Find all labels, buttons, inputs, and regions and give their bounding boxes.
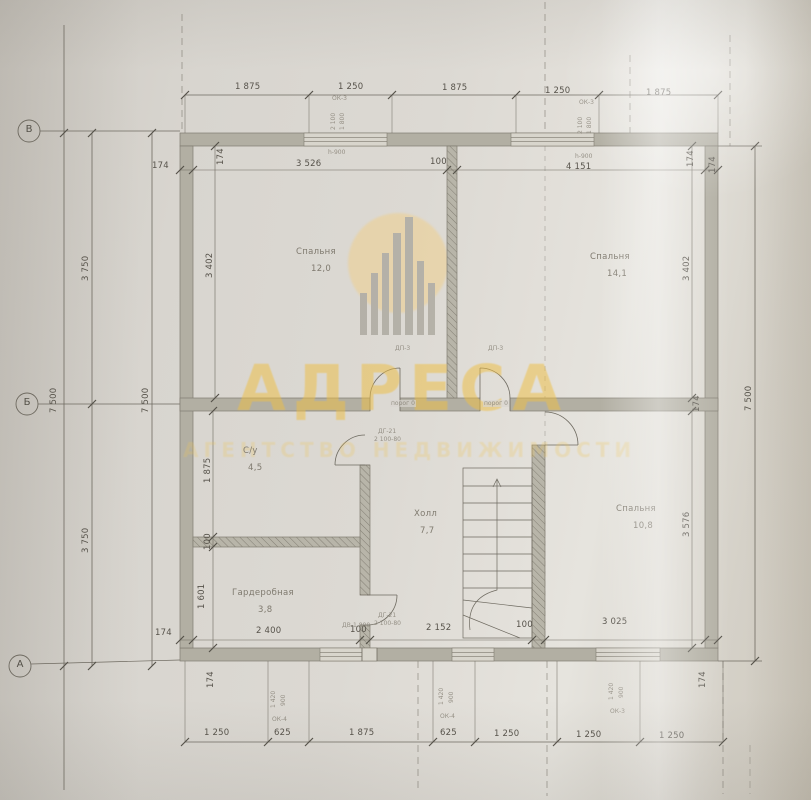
window-spec-top-1b: 1 800 [339, 113, 346, 130]
dim-wall-bl: 174 [155, 628, 172, 638]
dim-hall-width: 2 152 [426, 623, 451, 633]
dim-bot-2: 625 [274, 728, 291, 738]
window-spec-top-2a: 2 100 [577, 117, 584, 134]
window-tag-bot-3: ОК-3 [610, 708, 625, 715]
window-tag-bot-1: ОК-4 [272, 716, 287, 723]
door-tag-1: ДП-3 [395, 345, 410, 352]
dim-bot-7: 1 250 [659, 731, 684, 741]
room-wardrobe-name: Гардеробная [232, 588, 294, 598]
window-spec-top-1a: 2 100 [330, 113, 337, 130]
axis-label-a: А [13, 659, 27, 670]
dim-bot-5: 1 250 [494, 729, 519, 739]
room-hall-area: 7,7 [420, 526, 434, 536]
dim-partition-top: 100 [430, 157, 447, 167]
dim-right-total: 7 500 [744, 386, 754, 411]
dim-partition2-bot: 100 [516, 620, 533, 630]
dim-left-half-bottom: 3 750 [81, 528, 91, 553]
room-bedroom2-area: 14,1 [607, 269, 627, 279]
room-bedroom2-name: Спальня [590, 252, 630, 262]
window-spec-bot-2b: 900 [448, 692, 455, 703]
room-bedroom1-name: Спальня [296, 247, 336, 257]
room-bedroom3-area: 10,8 [633, 521, 653, 531]
staircase [463, 468, 532, 638]
room-wardrobe-area: 3,8 [258, 605, 272, 615]
door-spec-wardrobe-2: 2 100-80 [374, 620, 401, 627]
dim-room2-width: 4 151 [566, 162, 591, 172]
threshold-note-1: порог 0 [390, 400, 416, 407]
dim-bedroom3-width: 3 025 [602, 617, 627, 627]
dim-top-4: 1 250 [545, 86, 570, 96]
door-spec-bath-1: ДГ-21 [378, 428, 396, 435]
room-bathroom-name: С/у [243, 446, 258, 456]
window-tag-bot-2: ОК-4 [440, 713, 455, 720]
dim-top-3: 1 875 [442, 83, 467, 93]
window-spec-bot-1b: 900 [280, 695, 287, 706]
dim-wall-tr-v2: 174 [708, 156, 718, 173]
threshold-note-2: порог 0 [483, 400, 509, 407]
dim-wardrobe-width: 2 400 [256, 626, 281, 636]
dim-bot-4: 625 [440, 728, 457, 738]
sill-note-1: h-900 [328, 149, 345, 156]
room-bedroom3-name: Спальня [616, 504, 656, 514]
dim-wall-tl-v: 174 [216, 148, 226, 165]
dim-left-total-outer: 7 500 [49, 388, 59, 413]
entry-door-tag: ДВ-1 800 [342, 622, 370, 629]
axis-label-v: В [22, 124, 36, 135]
dim-top-1: 1 875 [235, 82, 260, 92]
door-spec-bath-2: 2 100-80 [374, 436, 401, 443]
dim-wardrobe-height: 1 601 [197, 584, 207, 609]
window-spec-bot-3a: 1 420 [608, 683, 615, 700]
dim-wall-tr-v1: 174 [686, 150, 696, 167]
scanned-floor-plan-photo: АДРЕСА АГЕНТСТВО НЕДВИЖИМОСТИ В Б А Спал… [0, 0, 811, 800]
dim-wall-tl: 174 [152, 161, 169, 171]
window-tag-top-1: ОК-3 [332, 95, 347, 102]
dim-room1-height: 3 402 [205, 253, 215, 278]
window-spec-bot-2a: 1 420 [438, 688, 445, 705]
dim-top-2: 1 250 [338, 82, 363, 92]
watermark-title: АДРЕСА [237, 352, 568, 425]
room-bathroom-area: 4,5 [248, 463, 262, 473]
sill-note-2: h-900 [575, 153, 592, 160]
room-bedroom1-area: 12,0 [311, 264, 331, 274]
door-spec-wardrobe-1: ДГ-21 [378, 612, 396, 619]
window-spec-bot-3b: 900 [618, 687, 625, 698]
dim-midwall-right: 174 [692, 395, 702, 412]
axis-circles [9, 120, 180, 677]
dim-bot-1: 1 250 [204, 728, 229, 738]
dim-wall-bl-v: 174 [206, 671, 216, 688]
dim-left-total-inner: 7 500 [141, 388, 151, 413]
axis-label-b: Б [20, 397, 34, 408]
dim-bot-3: 1 875 [349, 728, 374, 738]
dim-bath-height: 1 875 [203, 458, 213, 483]
window-spec-bot-1a: 1 420 [270, 691, 277, 708]
dim-top-5: 1 875 [646, 88, 671, 98]
dim-room2-height: 3 402 [682, 256, 692, 281]
dim-left-half-top: 3 750 [81, 256, 91, 281]
window-tag-top-2: ОК-3 [579, 99, 594, 106]
dim-bedroom3-height: 3 576 [682, 512, 692, 537]
window-spec-top-2b: 1 800 [586, 117, 593, 134]
dim-room1-width: 3 526 [296, 159, 321, 169]
dim-wall-br-v: 174 [698, 671, 708, 688]
dim-midwall-height: 100 [203, 533, 213, 550]
room-hall-name: Холл [414, 509, 437, 519]
dim-bot-6: 1 250 [576, 730, 601, 740]
door-tag-2: ДП-3 [488, 345, 503, 352]
